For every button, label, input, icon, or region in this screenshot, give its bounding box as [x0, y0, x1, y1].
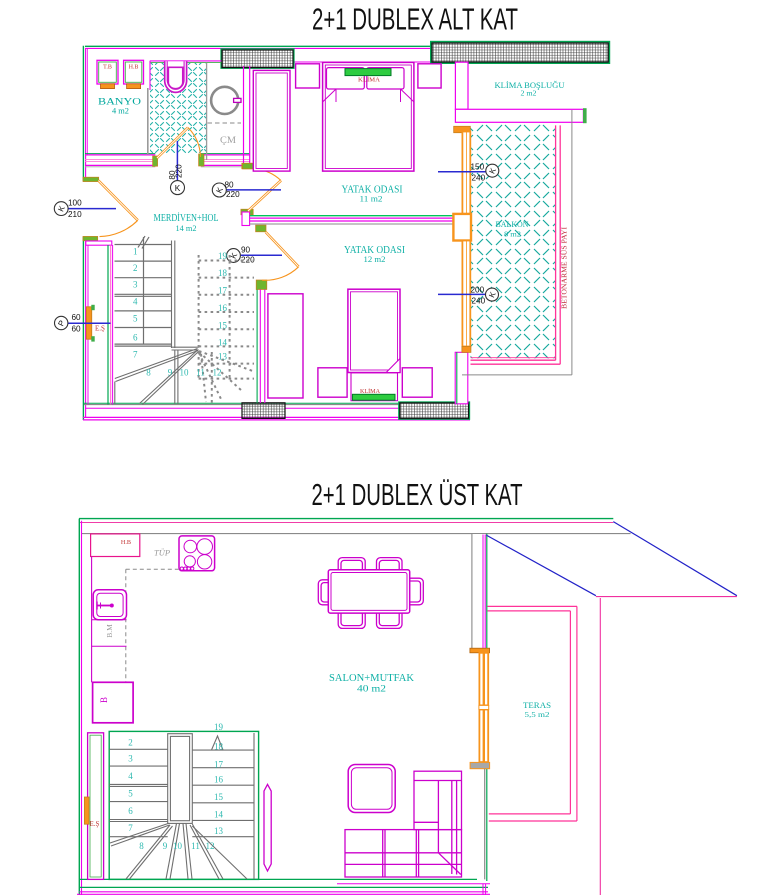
svg-text:13: 13	[218, 352, 228, 362]
svg-text:60: 60	[72, 313, 82, 322]
svg-text:1: 1	[133, 247, 138, 257]
svg-text:150: 150	[471, 162, 485, 171]
svg-text:4: 4	[133, 297, 138, 307]
svg-text:B.M: B.M	[105, 624, 114, 638]
svg-text:3: 3	[128, 754, 133, 764]
svg-text:80: 80	[225, 180, 235, 189]
svg-text:KLİMA: KLİMA	[360, 388, 380, 395]
svg-text:12: 12	[213, 368, 222, 378]
svg-text:10: 10	[173, 841, 183, 851]
svg-text:H.B: H.B	[121, 539, 131, 546]
svg-text:14 m2: 14 m2	[176, 223, 197, 233]
svg-text:220: 220	[226, 190, 240, 199]
svg-text:240: 240	[472, 173, 486, 182]
svg-text:2: 2	[133, 263, 138, 273]
svg-text:TÜP: TÜP	[154, 548, 170, 558]
svg-text:5: 5	[133, 314, 138, 324]
svg-text:40 m2: 40 m2	[357, 685, 386, 695]
svg-text:12 m2: 12 m2	[364, 254, 386, 264]
svg-text:11: 11	[196, 368, 205, 378]
svg-text:BALKON: BALKON	[496, 220, 529, 229]
svg-text:2+1 DUBLEX ALT KAT: 2+1 DUBLEX ALT KAT	[312, 2, 518, 37]
svg-text:90: 90	[241, 245, 251, 254]
svg-text:15: 15	[218, 321, 228, 331]
svg-text:5: 5	[128, 789, 133, 799]
svg-text:11: 11	[191, 841, 200, 851]
svg-text:15: 15	[214, 792, 224, 802]
svg-text:H.B: H.B	[129, 65, 139, 71]
svg-text:2+1 DUBLEX ÜST KAT: 2+1 DUBLEX ÜST KAT	[312, 477, 523, 512]
svg-text:240: 240	[472, 296, 486, 305]
svg-text:12: 12	[206, 841, 215, 851]
svg-text:B: B	[99, 697, 109, 703]
svg-text:14: 14	[218, 338, 228, 348]
svg-text:7: 7	[128, 823, 133, 833]
svg-text:8 m2: 8 m2	[504, 229, 521, 238]
svg-text:8: 8	[139, 841, 144, 851]
svg-text:18: 18	[214, 742, 224, 752]
svg-text:11 m2: 11 m2	[360, 194, 383, 204]
svg-text:K: K	[175, 184, 181, 193]
svg-text:19: 19	[214, 722, 224, 732]
svg-text:4: 4	[128, 771, 133, 781]
svg-text:ÇM: ÇM	[220, 136, 237, 146]
svg-text:18: 18	[218, 268, 228, 278]
svg-text:210: 210	[68, 210, 82, 219]
svg-text:7: 7	[133, 350, 138, 360]
svg-text:17: 17	[218, 286, 228, 296]
svg-text:TERAS: TERAS	[523, 701, 551, 710]
svg-text:9: 9	[168, 368, 173, 378]
svg-text:2: 2	[128, 738, 133, 748]
svg-text:6: 6	[133, 333, 138, 343]
svg-text:E.Ş: E.Ş	[95, 325, 105, 333]
svg-text:17: 17	[214, 760, 224, 770]
svg-text:13: 13	[214, 826, 224, 836]
svg-text:60: 60	[72, 325, 82, 334]
svg-text:T.B: T.B	[103, 65, 112, 71]
svg-text:220: 220	[175, 164, 184, 178]
svg-text:SALON+MUTFAK: SALON+MUTFAK	[329, 673, 414, 684]
svg-text:8: 8	[146, 368, 151, 378]
svg-text:BETONARME SÜS PAYI: BETONARME SÜS PAYI	[560, 227, 569, 309]
svg-text:100: 100	[68, 198, 82, 207]
svg-text:E.Ş: E.Ş	[90, 821, 100, 828]
svg-text:KLİMA: KLİMA	[358, 77, 380, 84]
svg-text:9: 9	[163, 841, 168, 851]
svg-text:6: 6	[128, 806, 133, 816]
svg-text:200: 200	[471, 285, 485, 294]
svg-text:4 m2: 4 m2	[112, 105, 129, 115]
svg-text:10: 10	[180, 368, 190, 378]
svg-text:14: 14	[214, 810, 224, 820]
svg-text:16: 16	[214, 775, 224, 785]
svg-text:5,5 m2: 5,5 m2	[525, 710, 550, 719]
svg-text:2 m2: 2 m2	[521, 89, 537, 98]
svg-text:16: 16	[218, 303, 228, 313]
svg-text:3: 3	[133, 280, 138, 290]
svg-text:19: 19	[218, 251, 228, 261]
